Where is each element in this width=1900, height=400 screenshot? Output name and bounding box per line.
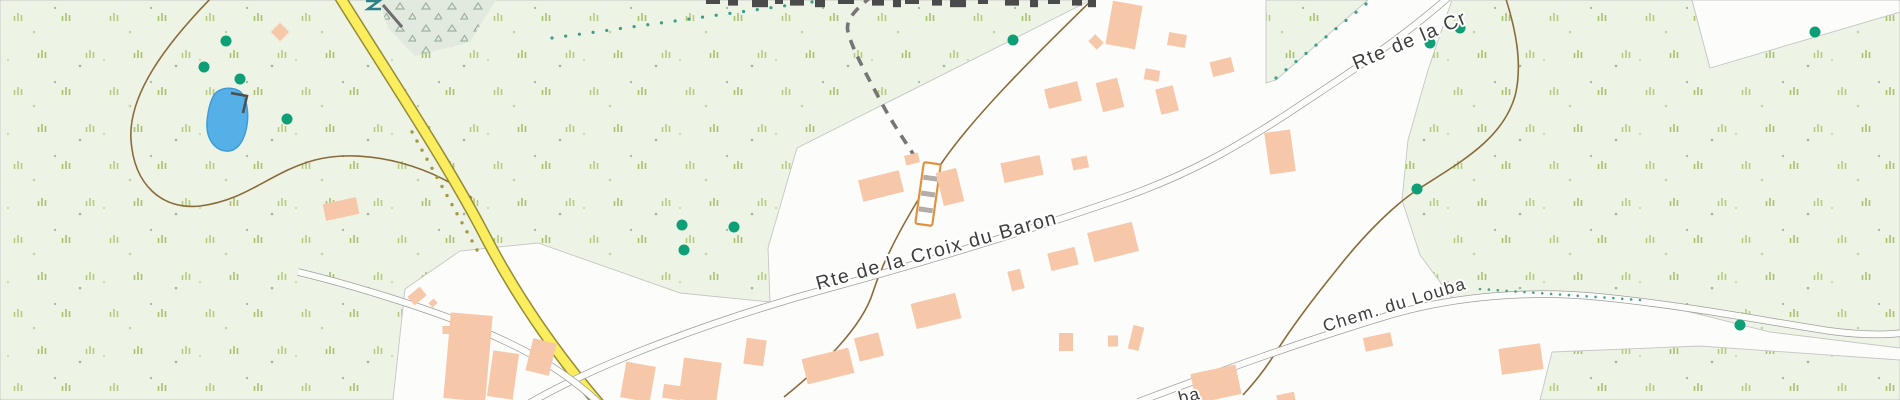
cutoff-text-fragment [790,0,804,6]
dotted-line-dot [410,130,413,133]
dotted-line-dot [605,29,608,32]
dotted-line-dot [1514,290,1517,293]
dotted-line-dot [1304,52,1307,55]
dotted-line-dot [1354,11,1357,14]
dotted-line-dot [633,25,636,28]
dotted-line-dot [475,248,478,251]
dotted-line-dot [1496,289,1499,292]
dotted-line-dot [430,167,433,170]
cutoff-text-fragment [1030,0,1038,7]
dotted-line-dot [435,176,438,179]
dotted-line-dot [1324,35,1327,38]
cutoff-text-fragment [815,0,825,7]
dotted-line-dot [1274,76,1277,79]
dotted-line-dot [756,8,759,11]
dotted-line-dot [550,36,553,39]
top-label-fragments [706,0,1096,7]
dotted-line-dot [1639,299,1642,302]
cutoff-text-fragment [905,0,919,4]
building [1108,336,1118,347]
dotted-line-dot [1505,290,1508,293]
dotted-line-dot [1479,288,1482,291]
dotted-line-dot [715,14,718,17]
cutoff-text-fragment [1072,0,1082,6]
cutoff-text-fragment [893,0,901,7]
dotted-line-dot [440,185,443,188]
building [662,384,682,400]
dotted-line-dot [1621,297,1624,300]
dotted-line-dot [1630,298,1633,301]
dotted-line-dot [1559,293,1562,296]
dotted-line-dot [783,4,786,7]
dotted-line-dot [1612,297,1615,300]
dotted-line-dot [425,158,428,161]
cutoff-text-fragment [706,0,720,4]
tree-dot-icon [729,222,740,233]
dotted-line-dot [1541,292,1544,295]
dotted-line-dot [701,16,704,19]
dotted-line-dot [1585,295,1588,298]
dotted-line-dot [1334,27,1337,30]
pond [207,88,248,151]
tree-dot-icon [235,74,246,85]
cutoff-text-fragment [775,0,783,4]
dotted-line-dot [619,27,622,30]
cutoff-text-fragment [728,0,738,6]
building [1059,333,1073,351]
dotted-line-dot [445,194,448,197]
cutoff-text-fragment [838,0,854,4]
building [678,358,721,400]
dotted-line-dot [687,17,690,20]
dotted-line-dot [1284,68,1287,71]
cutoff-text-fragment [1005,0,1019,6]
dotted-line-dot [742,10,745,13]
dotted-line-dot [1364,2,1367,5]
dotted-line-dot [1576,294,1579,297]
dotted-line-dot [465,230,468,233]
tree-dot-icon [199,62,210,73]
dotted-line-dot [1603,296,1606,299]
dotted-line-dot [810,0,813,3]
cutoff-text-fragment [1088,0,1096,7]
dotted-line-dot [1532,291,1535,294]
dotted-line-dot [1488,288,1491,291]
tree-dot-icon [282,114,293,125]
tree-dot-icon [221,36,232,47]
dotted-line-dot [769,6,772,9]
dotted-line-dot [674,19,677,22]
dotted-line-dot [578,33,581,36]
tree-dot-icon [1735,320,1746,331]
tree-dot-icon [1008,35,1019,46]
dotted-line-dot [591,31,594,34]
dotted-line-dot [470,239,473,242]
dotted-line-dot [1523,291,1526,294]
dotted-line-dot [1294,60,1297,63]
tree-dot-icon [1412,184,1423,195]
cutoff-text-fragment [978,0,988,4]
cutoff-text-fragment [752,0,768,7]
dotted-line-dot [1314,44,1317,47]
cutoff-text-fragment [950,0,966,7]
dotted-line-dot [1550,293,1553,296]
dotted-line-dot [460,221,463,224]
dotted-line-dot [455,212,458,215]
cutoff-text-fragment [872,0,884,6]
dotted-line-dot [450,203,453,206]
dotted-line-dot [646,23,649,26]
dotted-line-dot [660,21,663,24]
dotted-line-dot [1568,294,1571,297]
building [620,362,656,400]
dotted-line-dot [1594,296,1597,299]
cutoff-text-fragment [1048,0,1060,4]
building [743,338,766,367]
tree-dot-icon [677,220,688,231]
dotted-line-dot [1344,19,1347,22]
building [443,312,492,400]
tree-dot-icon [679,245,690,256]
cutoff-text-fragment [932,0,942,6]
map-canvas[interactable]: Rte de la Croix du Baron Rte de la Cr Ch… [0,0,1900,400]
tree-dot-icon [1810,27,1821,38]
dotted-line-dot [728,12,731,15]
dotted-line-dot [564,35,567,38]
dotted-line-dot [420,148,423,151]
map-viewport[interactable]: Rte de la Croix du Baron Rte de la Cr Ch… [0,0,1900,400]
dotted-line-dot [415,139,418,142]
